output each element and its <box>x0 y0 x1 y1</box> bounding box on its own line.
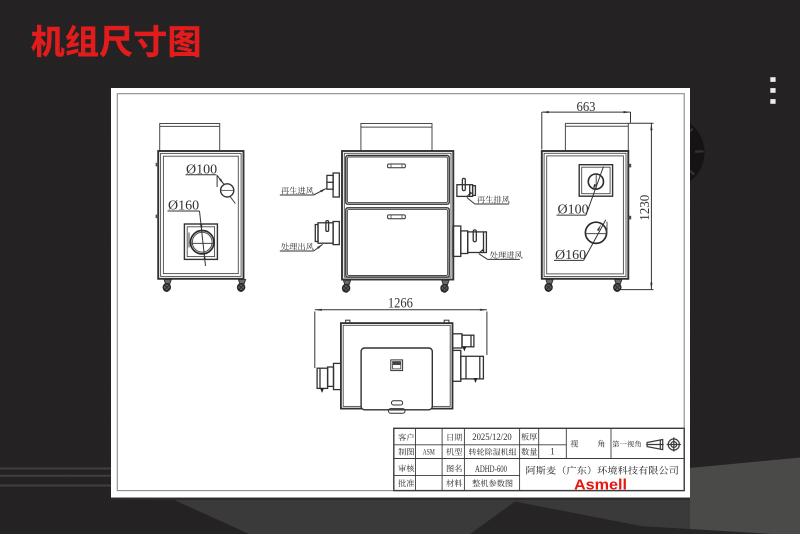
svg-text:ADHD-600: ADHD-600 <box>475 464 507 474</box>
svg-text:2025/12/20: 2025/12/20 <box>472 432 512 442</box>
svg-text:1230: 1230 <box>638 195 653 221</box>
svg-text:Asmell: Asmell <box>574 477 627 493</box>
svg-text:663: 663 <box>577 100 596 115</box>
svg-text:1: 1 <box>550 447 555 457</box>
svg-text:ASM: ASM <box>423 448 435 457</box>
svg-text:1266: 1266 <box>388 295 413 311</box>
